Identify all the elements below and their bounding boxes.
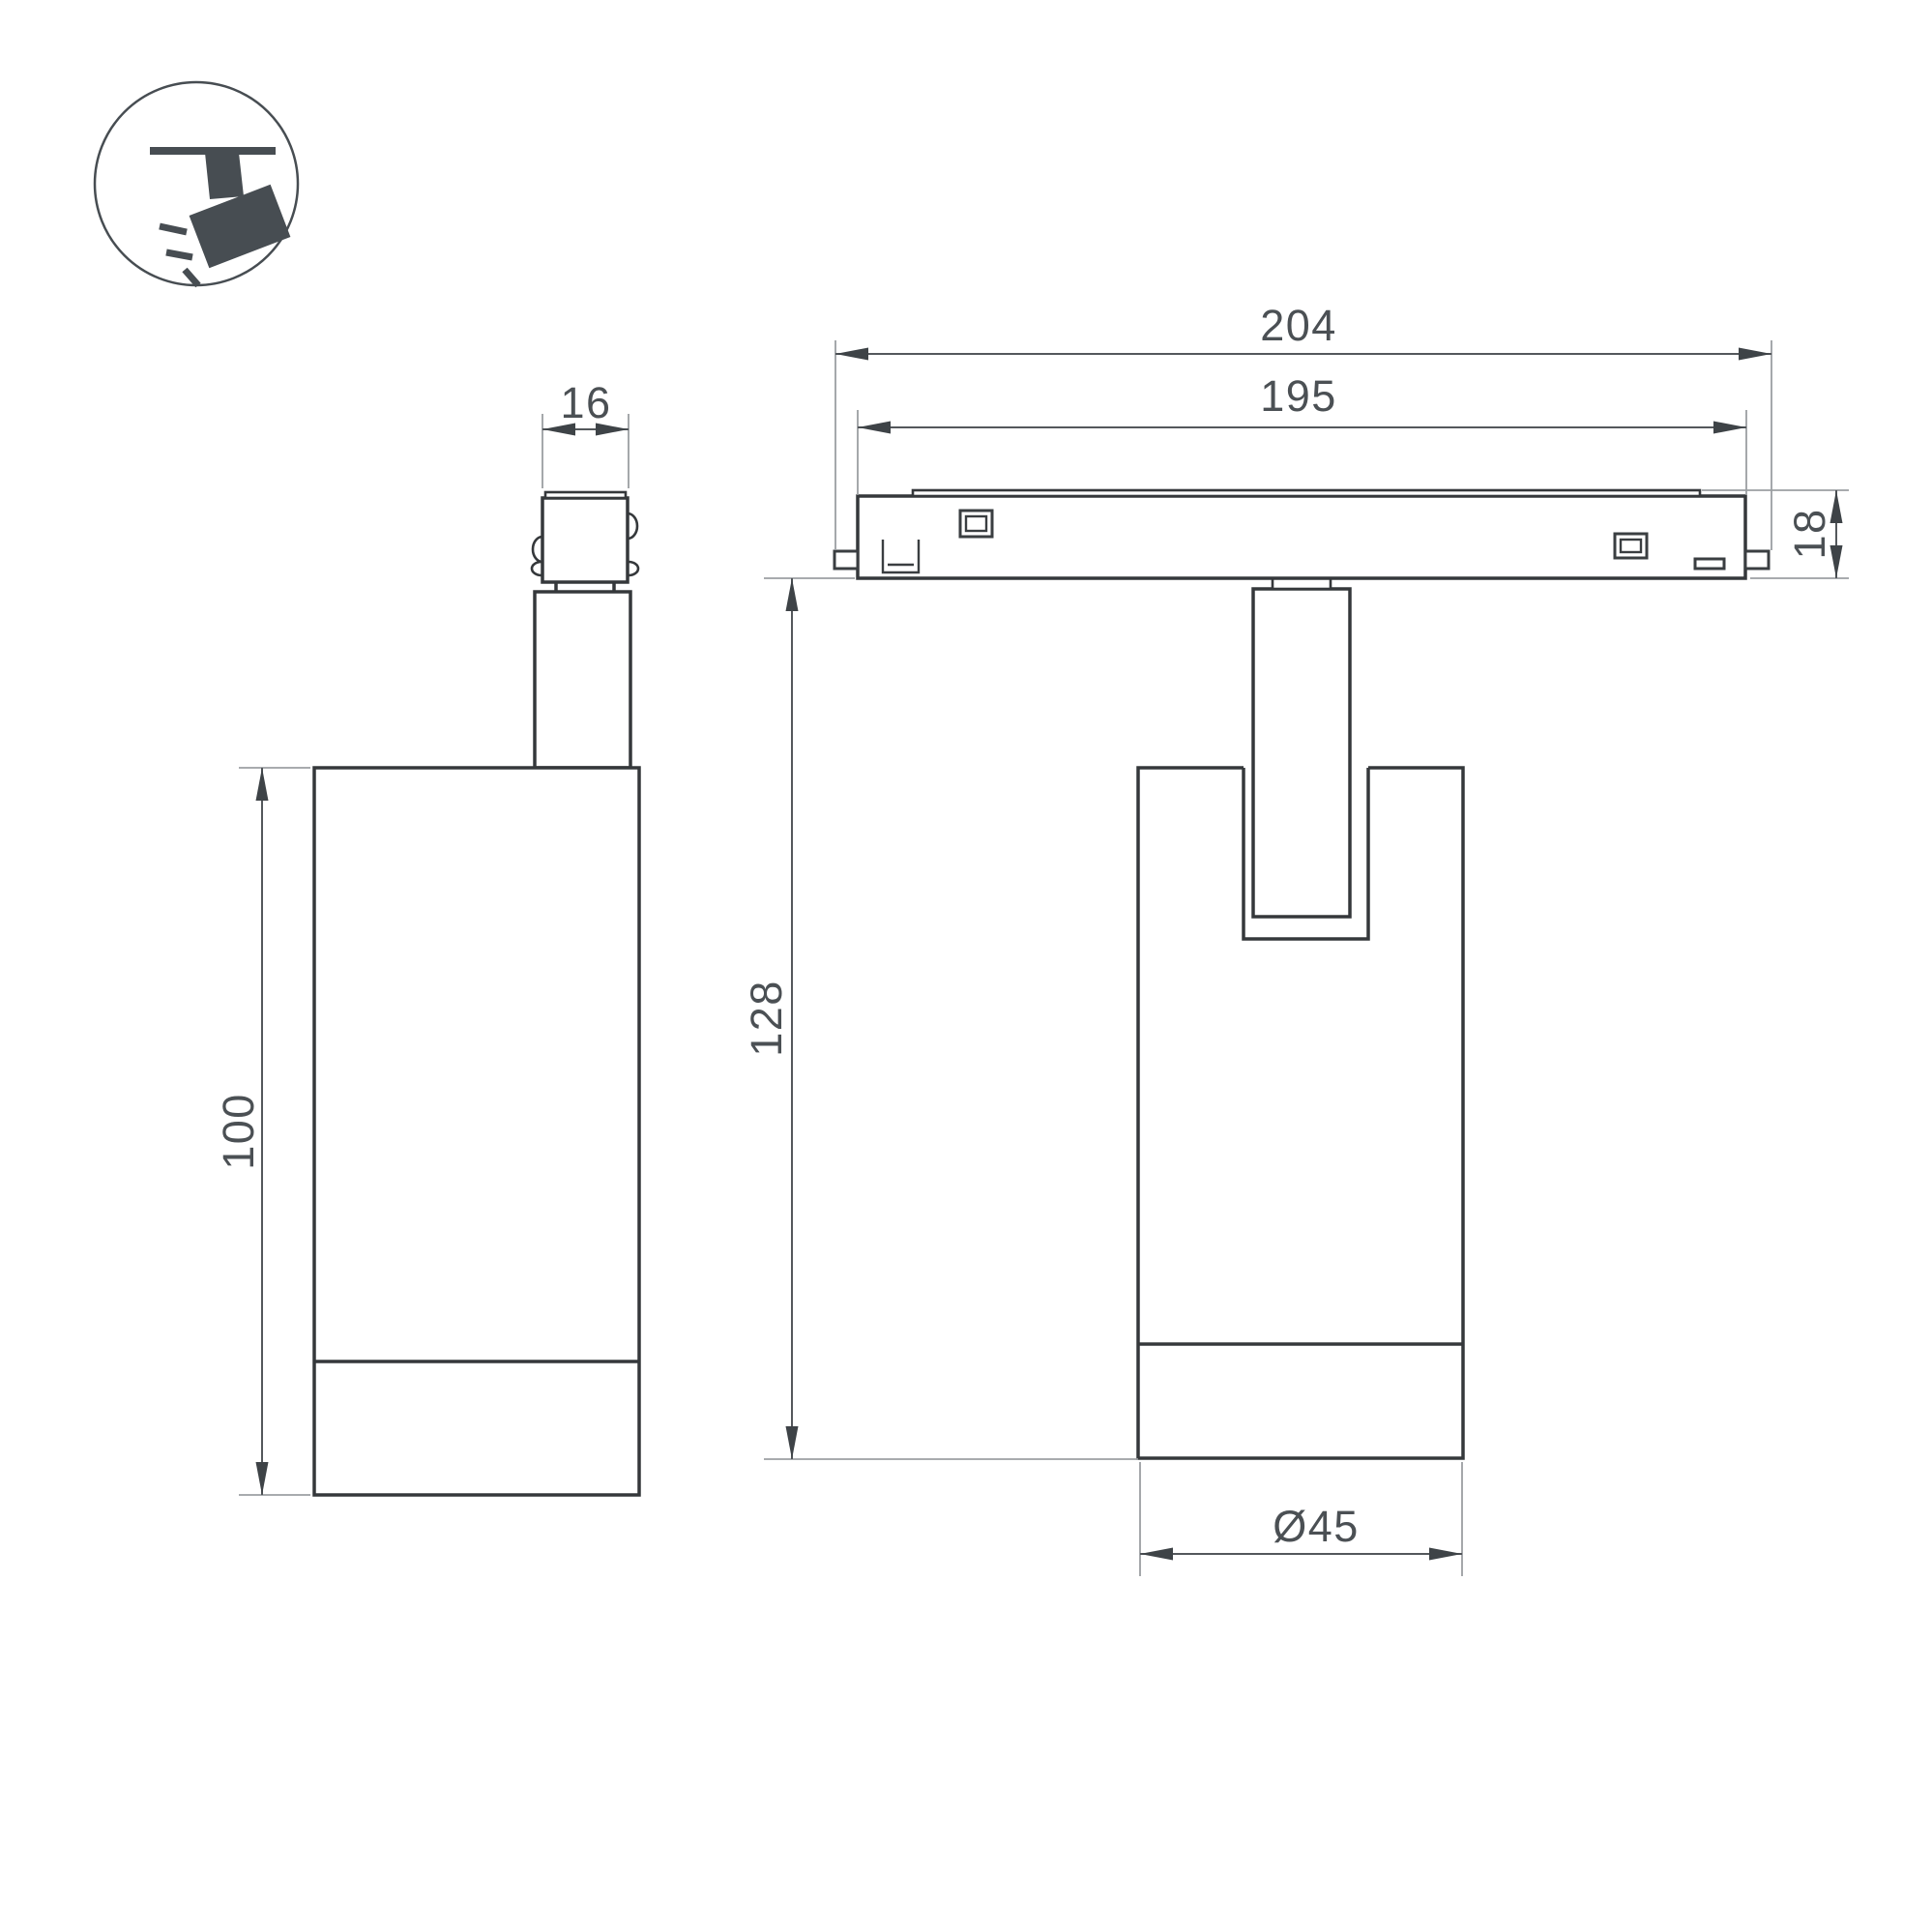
side-view: [314, 492, 639, 1495]
rail-top-plate: [913, 490, 1700, 496]
dim-label-track-length: 204: [1260, 301, 1337, 350]
track-adapter: [542, 498, 628, 582]
icon-light-ray: [160, 226, 187, 232]
stem: [535, 592, 630, 768]
dim-label-track-window: 195: [1260, 371, 1337, 421]
icon-stem: [205, 153, 244, 199]
stem-front: [1253, 589, 1350, 917]
dim-label-overall-height: 128: [742, 980, 791, 1057]
dimension-drawing: 16 100 204: [0, 0, 1932, 1932]
dim-label-adapter-width: 16: [560, 378, 611, 427]
rail-end-pin-right: [1745, 551, 1769, 569]
icon-lamp-body: [190, 185, 291, 268]
dim-label-body-diameter: Ø45: [1273, 1502, 1360, 1551]
dimension-drawing-page: 16 100 204: [0, 0, 1932, 1932]
adapter-contact-plate: [545, 492, 626, 498]
rail-slot: [1695, 559, 1724, 569]
front-view: [834, 490, 1769, 1458]
icon-light-ray: [166, 252, 192, 257]
icon-light-ray: [185, 270, 198, 285]
spot-body: [314, 768, 639, 1495]
icon-circle: [95, 82, 298, 285]
dim-label-body-height: 100: [214, 1093, 263, 1170]
track-spotlight-icon: [95, 82, 298, 285]
dim-label-track-height: 18: [1785, 508, 1834, 559]
rail-end-pin-left: [834, 551, 858, 569]
